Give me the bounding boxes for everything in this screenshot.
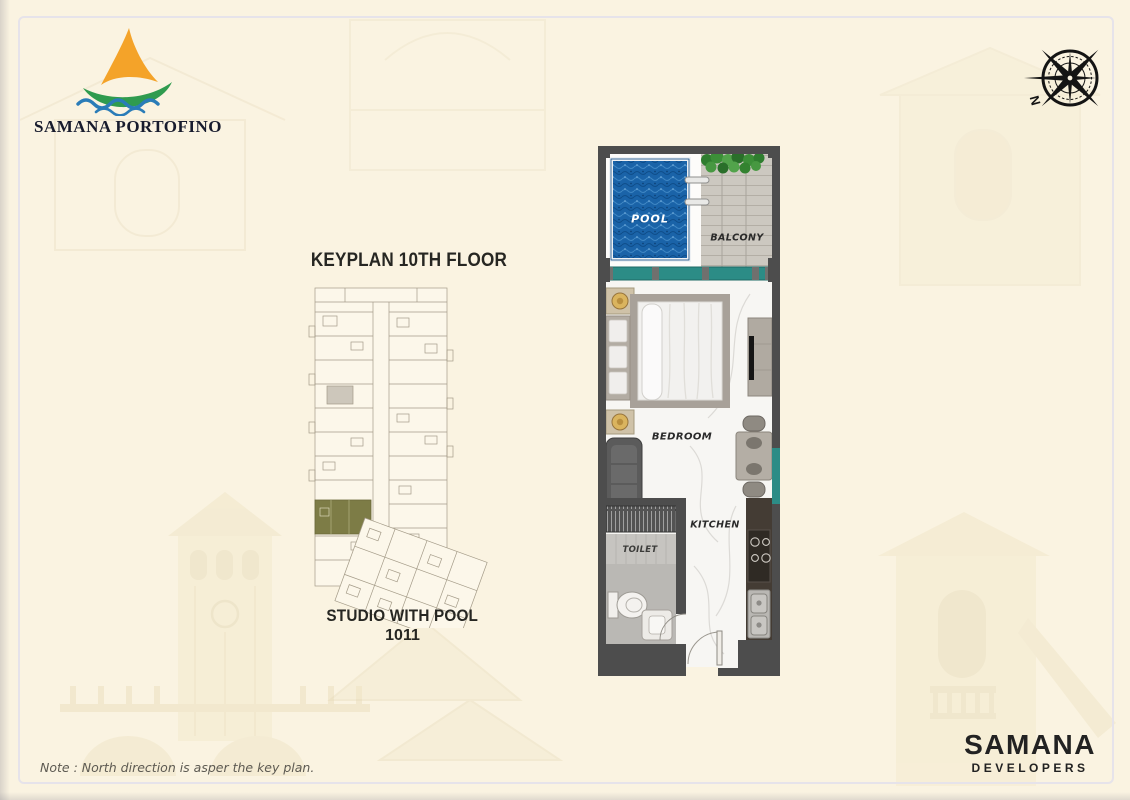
keyplan-section: KEYPLAN 10TH FLOOR xyxy=(300,250,505,628)
toilet-label: TOILET xyxy=(622,545,657,555)
north-direction-note: Note : North direction is asper the key … xyxy=(40,760,314,775)
project-logo: SAMANA PORTOFINO xyxy=(28,24,228,137)
floorplan-drawing xyxy=(598,146,780,676)
developer-name: SAMANA xyxy=(964,731,1096,759)
unit-number-label: 1011 xyxy=(300,627,505,645)
sailboat-icon xyxy=(28,24,228,116)
balcony-label: BALCONY xyxy=(710,233,763,244)
compass-north-label: N xyxy=(1027,94,1044,107)
developer-subtitle: DEVELOPERS xyxy=(964,761,1096,775)
floorplan: POOL BALCONY BEDROOM KITCHEN TOILET xyxy=(598,146,780,676)
unit-type-label: STUDIO WITH POOL xyxy=(327,606,479,626)
compass-rose: N xyxy=(1022,30,1118,126)
page-edge-shadow-bottom xyxy=(0,792,1130,800)
keyplan-title: KEYPLAN 10TH FLOOR xyxy=(311,250,507,272)
brochure-page: { "page": { "background": "#faf3e1", "fr… xyxy=(0,0,1130,800)
project-logo-title: SAMANA PORTOFINO xyxy=(28,117,228,137)
bedroom-label: BEDROOM xyxy=(652,432,712,443)
pool-label: POOL xyxy=(631,213,669,226)
kitchen-label: KITCHEN xyxy=(690,520,740,531)
keyplan-drawing xyxy=(307,286,499,628)
developer-logo: SAMANA DEVELOPERS xyxy=(964,731,1096,775)
page-edge-shadow-left xyxy=(0,0,10,800)
compass-icon: N xyxy=(1022,30,1118,126)
unit-caption: STUDIO WITH POOL 1011 xyxy=(300,606,505,645)
